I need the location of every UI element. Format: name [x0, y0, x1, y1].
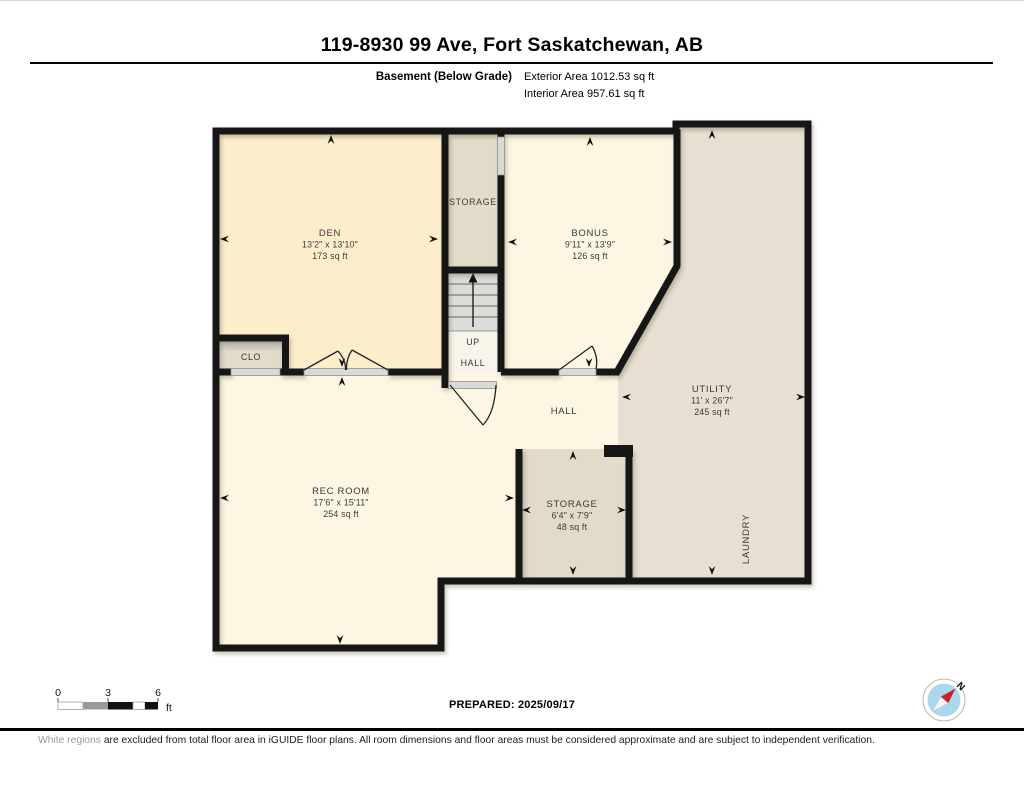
- hall-label: HALL: [551, 406, 578, 417]
- den-area: 173 sq ft: [312, 251, 348, 261]
- prepared-date: PREPARED: 2025/09/17: [0, 699, 1024, 711]
- clo-label: CLO: [241, 352, 261, 362]
- bonus-label: BONUS: [571, 228, 608, 239]
- storage-top-door-opening: [498, 137, 505, 175]
- rec-room-label: REC ROOM: [312, 486, 370, 497]
- disclaimer-text: White regions are excluded from total fl…: [38, 735, 998, 746]
- disclaimer-rest: are excluded from total floor area in iG…: [101, 735, 875, 746]
- utility-dims: 11' x 26'7": [691, 396, 733, 406]
- footer-divider: [0, 728, 1024, 731]
- rec-room-dims: 17'6" x 15'11": [313, 498, 368, 508]
- den-dims: 13'2" x 13'10": [302, 240, 358, 250]
- rec-room-area: 254 sq ft: [323, 509, 359, 519]
- scale-tick-0: 0: [55, 687, 61, 699]
- storage-lower-corner-wall: [604, 445, 633, 457]
- utility-label: UTILITY: [692, 384, 732, 395]
- den-label: DEN: [319, 228, 341, 239]
- bonus-area: 126 sq ft: [572, 251, 608, 261]
- utility-area: 245 sq ft: [694, 407, 730, 417]
- up-hall-door-opening: [449, 382, 497, 389]
- clo-door-opening: [231, 369, 280, 376]
- storage-lower-area: 48 sq ft: [557, 522, 588, 532]
- scale-tick-3: 3: [105, 687, 111, 699]
- laundry-label: LAUNDRY: [741, 514, 752, 564]
- disclaimer-lead: White regions: [38, 735, 101, 746]
- storage-lower-dims: 6'4" x 7'9": [552, 511, 593, 521]
- up-label: UP: [466, 337, 480, 347]
- bonus-door-opening: [559, 369, 596, 376]
- storage-top-label: STORAGE: [449, 197, 497, 207]
- floorplan-page: { "header": { "title": "119-8930 99 Ave,…: [0, 0, 1024, 791]
- floorplan-svg: DEN 13'2" x 13'10" 173 sq ft STORAGE BON…: [0, 1, 1024, 792]
- bonus-dims: 9'11" x 13'9": [565, 240, 615, 250]
- up-hall-label: HALL: [461, 358, 486, 368]
- scale-tick-6: 6: [155, 687, 161, 699]
- clo-shelf: [218, 341, 282, 350]
- storage-lower-label: STORAGE: [546, 499, 597, 510]
